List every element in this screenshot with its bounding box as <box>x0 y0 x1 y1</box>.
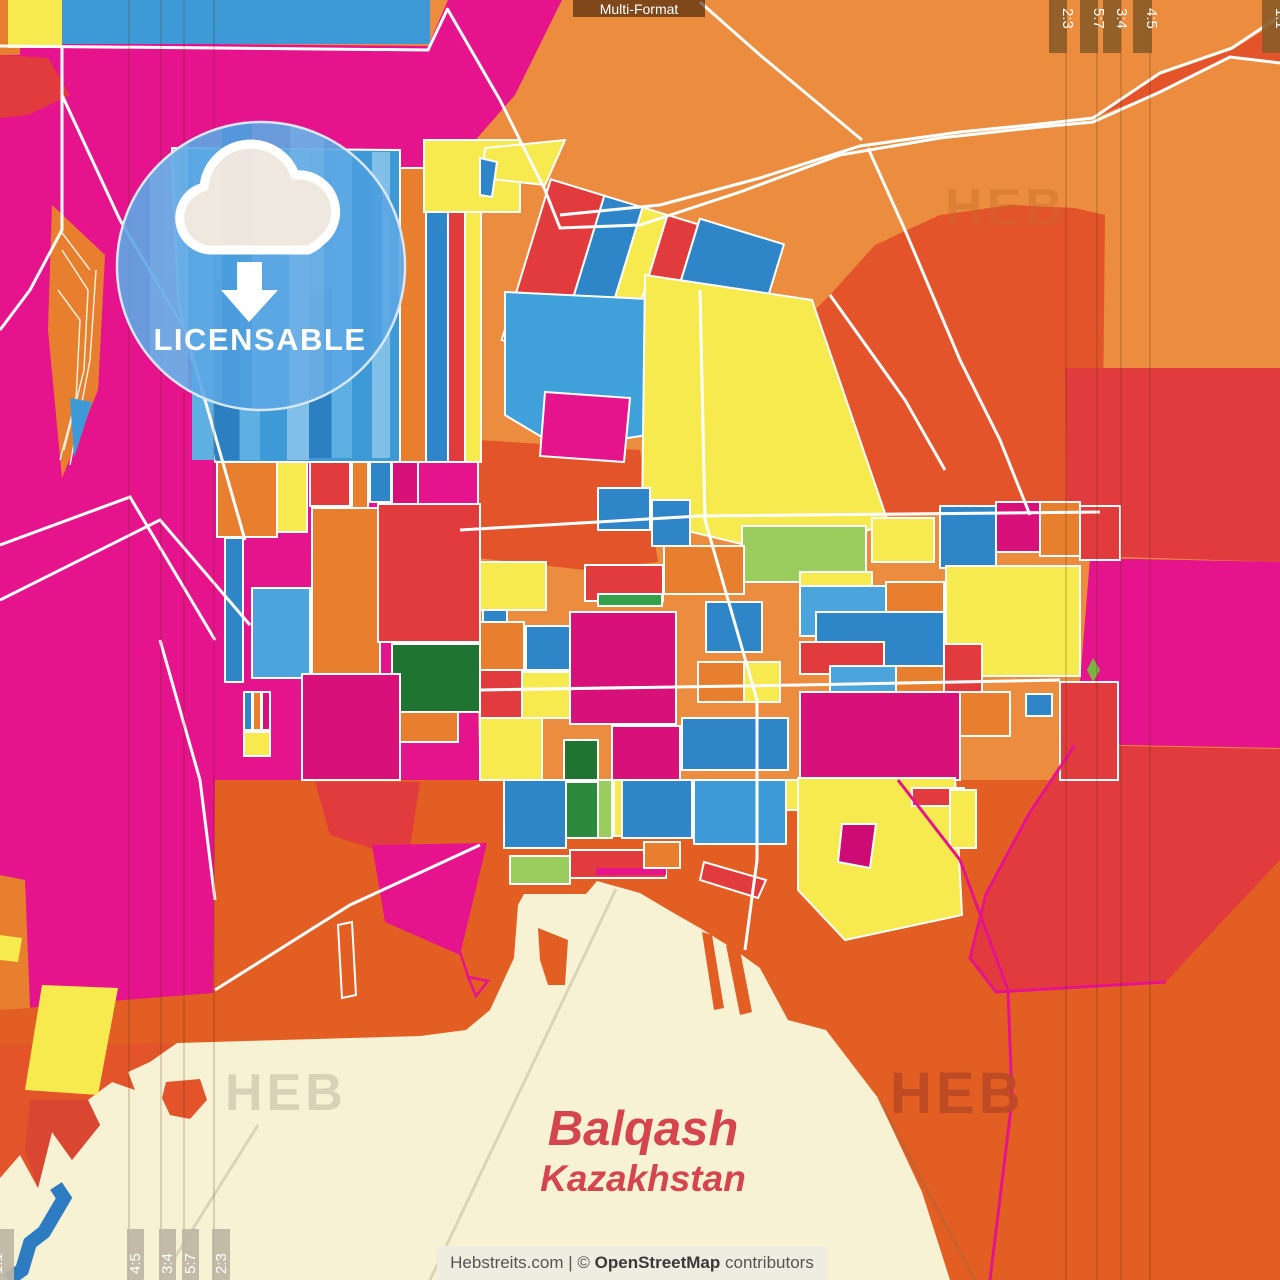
svg-text:5:7: 5:7 <box>182 1253 199 1274</box>
svg-text:HEB: HEB <box>225 1064 347 1122</box>
svg-text:HEB: HEB <box>945 179 1067 237</box>
svg-text:3:4: 3:4 <box>1113 8 1130 29</box>
svg-text:LICENSABLE: LICENSABLE <box>153 322 366 357</box>
svg-text:1:1: 1:1 <box>0 1253 6 1274</box>
svg-text:4:5: 4:5 <box>127 1253 144 1274</box>
svg-text:3:4: 3:4 <box>159 1253 176 1274</box>
svg-text:5:7: 5:7 <box>1090 8 1107 29</box>
svg-text:Multi-Format: Multi-Format <box>600 1 679 17</box>
svg-text:2:3: 2:3 <box>1059 8 1076 29</box>
svg-text:Kazakhstan: Kazakhstan <box>540 1158 746 1199</box>
svg-text:Balqash: Balqash <box>548 1102 739 1156</box>
svg-text:1:1: 1:1 <box>1272 8 1280 29</box>
svg-text:Hebstreits.com | © OpenStreetM: Hebstreits.com | © OpenStreetMap contrib… <box>450 1253 814 1272</box>
svg-text:HEB: HEB <box>890 1061 1024 1126</box>
svg-text:4:5: 4:5 <box>1143 8 1160 29</box>
svg-text:2:3: 2:3 <box>213 1253 230 1274</box>
